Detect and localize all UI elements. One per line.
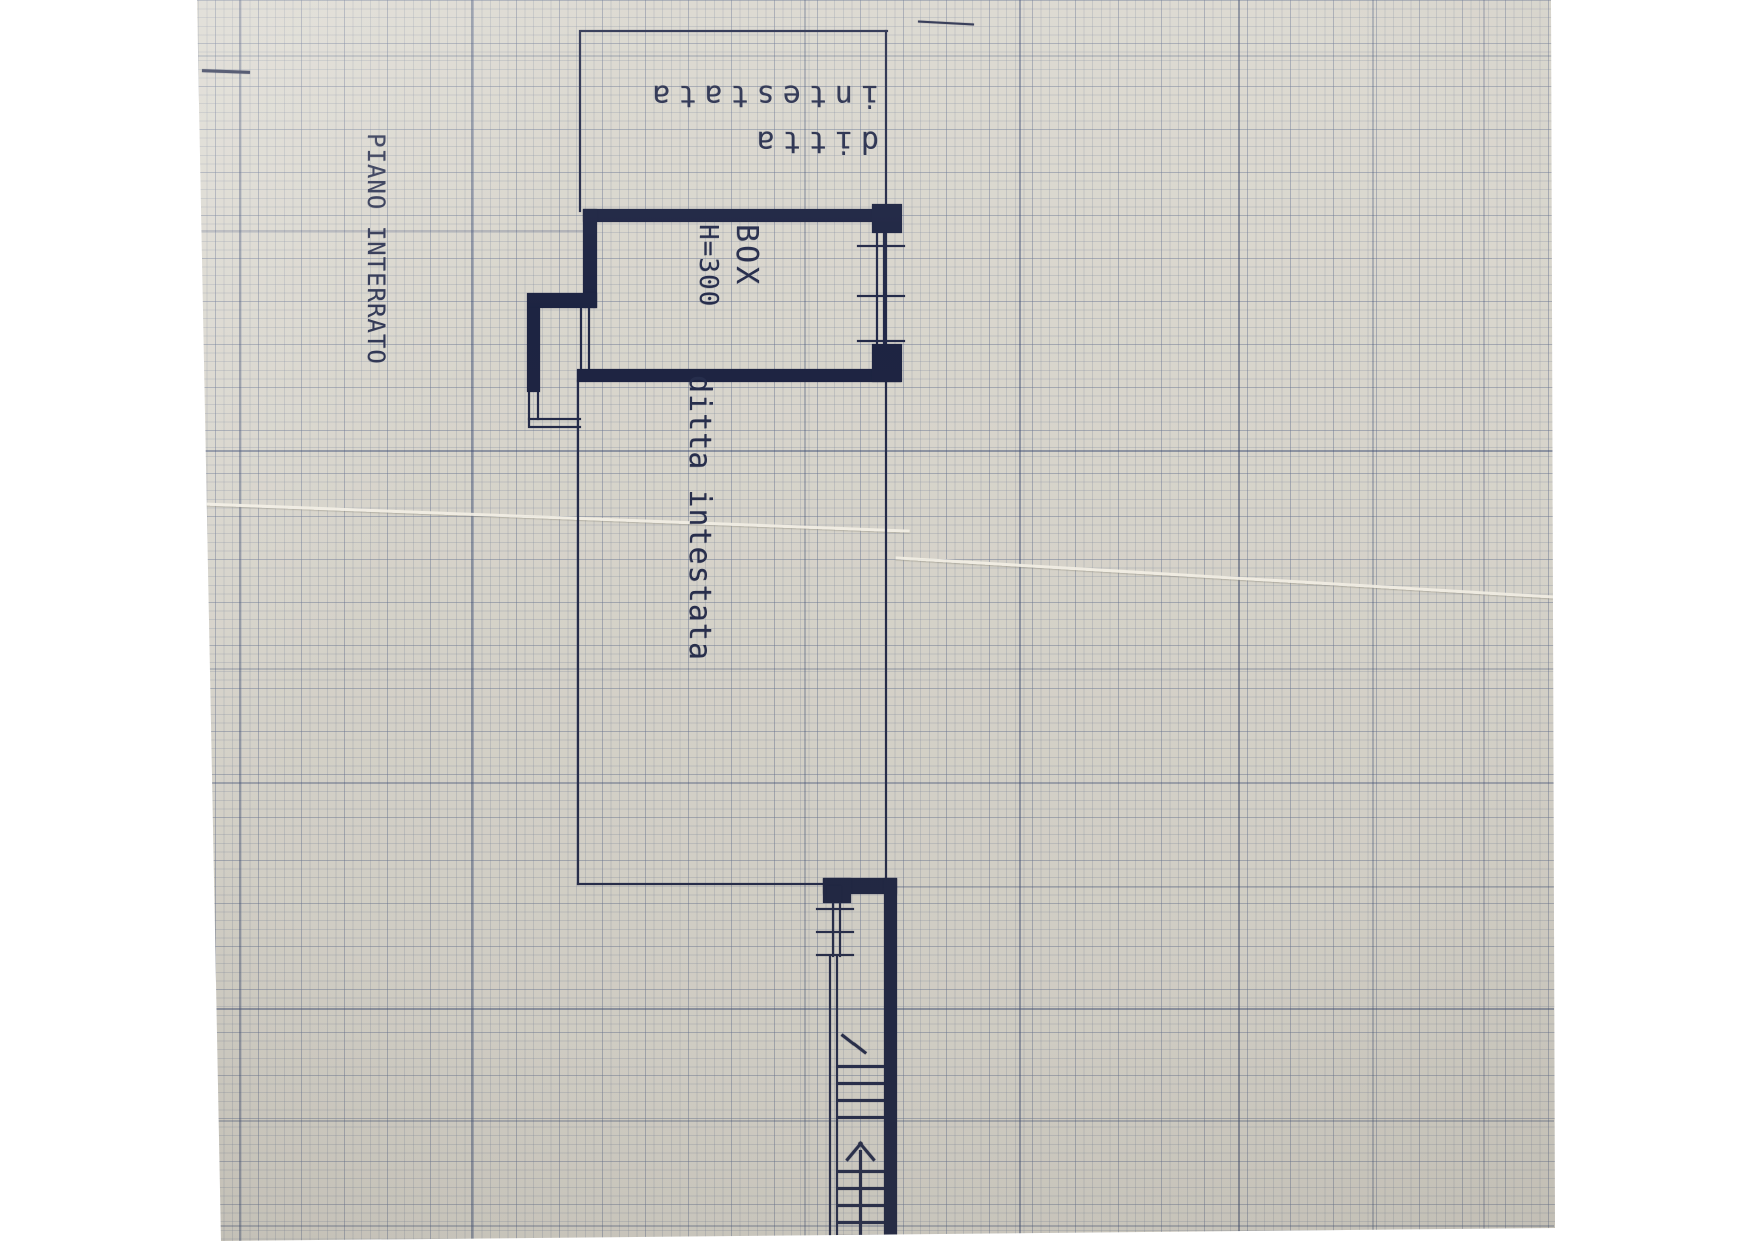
stair-door-leaf (832, 902, 834, 957)
box-wall-stub (527, 293, 597, 308)
grid-line (1238, 0, 1240, 1241)
letterhead-line: intestata (627, 72, 879, 118)
garage-door-tick (857, 340, 905, 342)
millimeter-grid (0, 0, 1754, 1241)
recess-wall-thick (527, 308, 540, 392)
stair-door-leaf (839, 902, 841, 957)
grid-line (197, 1008, 1554, 1010)
letterhead-note: ditta intestata (627, 72, 879, 164)
box-door-jamb-bottom (872, 344, 902, 382)
boundary-line-left-upper (579, 30, 581, 212)
stair-door-tick (816, 931, 854, 933)
boundary-line-top (581, 30, 888, 32)
grid-line (197, 450, 1554, 452)
stair-wall-right (884, 878, 897, 1236)
box-door-jamb-top (872, 204, 902, 233)
stair-wall-left (836, 955, 838, 1236)
box-opening-line (580, 308, 582, 369)
stair-door-tick (816, 954, 854, 956)
stair-wall-left (829, 955, 831, 1236)
room-name-label: BOX (729, 224, 764, 374)
grid-line (471, 0, 473, 1241)
grid-line (860, 886, 1554, 888)
grid-line (239, 0, 241, 1241)
grid-line (197, 55, 1554, 57)
stair-direction-arrow-shaft (859, 1150, 862, 1236)
stair-tread (838, 1065, 884, 1068)
letterhead-line: ditta (627, 118, 879, 164)
box-room-label: BOX H=300 (693, 224, 764, 374)
grid-line (197, 1225, 1554, 1227)
stair-door-hinge (827, 886, 841, 902)
recess-wall-line (528, 426, 581, 428)
recess-wall-line (528, 418, 581, 420)
grid-line (197, 230, 588, 232)
stair-door-tick (816, 908, 854, 910)
floor-title-label: PIANO INTERRATO (362, 133, 390, 365)
stair-tread (838, 1099, 884, 1102)
boundary-line-right (885, 30, 887, 880)
grid-line (804, 0, 806, 1241)
garage-door-tick (857, 295, 905, 297)
room-height-label: H=300 (693, 224, 723, 374)
grid-line (1019, 0, 1021, 1241)
boundary-line-left-lower (577, 380, 579, 885)
boundary-line-bottom (577, 883, 825, 885)
garage-door-leaf (876, 233, 878, 344)
stair-tread (838, 1082, 884, 1085)
box-wall-top (583, 209, 901, 222)
grid-line (1483, 0, 1485, 1241)
graph-paper-sheet: PIANO INTERRATO BOX H=300 ditta intestat… (0, 0, 1754, 1241)
recess-wall-line (528, 392, 530, 426)
side-note-label: ditta intestata (682, 375, 717, 661)
grid-line (197, 1120, 1554, 1122)
grid-line (197, 668, 1554, 670)
grid-line (1372, 0, 1374, 1241)
grid-line (197, 782, 1554, 784)
floor-plan-photo: PIANO INTERRATO BOX H=300 ditta intestat… (0, 0, 1754, 1241)
recess-wall-line (537, 392, 539, 420)
garage-door-leaf (883, 233, 885, 344)
stair-tread (838, 1116, 884, 1119)
garage-door-tick (857, 245, 905, 247)
box-opening-line (588, 308, 590, 369)
stair-tread (838, 1235, 884, 1238)
